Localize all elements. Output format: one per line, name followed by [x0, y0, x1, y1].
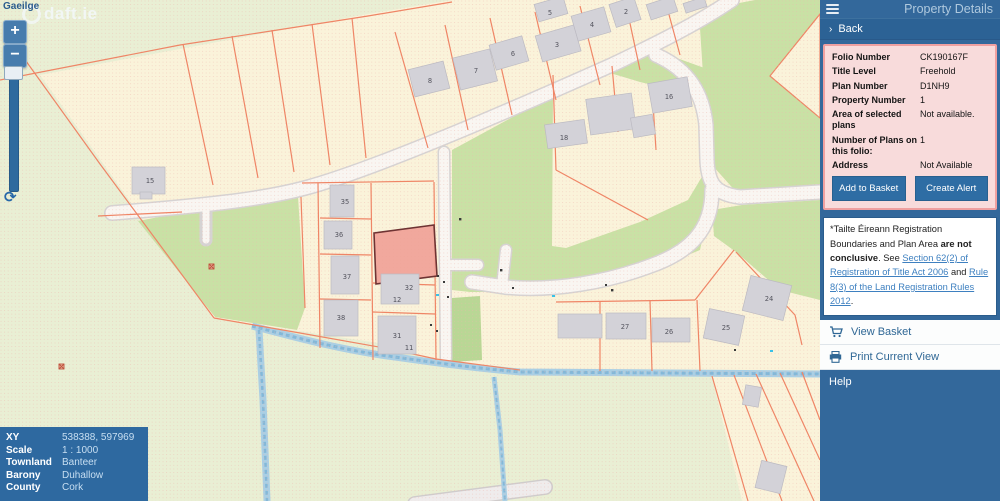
- info-value: Cork: [62, 482, 83, 495]
- zoom-slider-track[interactable]: [9, 70, 19, 192]
- zoom-in-button[interactable]: +: [3, 20, 27, 44]
- folio-details-card: Folio Number CK190167F Title Level Freeh…: [823, 44, 997, 210]
- language-link-gaeilge[interactable]: Gaeilge: [3, 1, 39, 12]
- building-label: 24: [765, 295, 773, 303]
- disclaimer-text: . See: [878, 253, 902, 263]
- info-row-townland: Townland Banteer: [6, 457, 140, 470]
- detail-label: Address: [832, 160, 920, 171]
- info-row-barony: Barony Duhallow: [6, 470, 140, 483]
- map-canvas[interactable]: 15 35 36 37 38 32 12 31 11 8 7 6 5 3 4 2…: [0, 0, 820, 501]
- info-value: 1 : 1000: [62, 445, 98, 458]
- help-link[interactable]: Help: [820, 370, 1000, 394]
- building-label: 35: [341, 198, 349, 206]
- create-alert-button[interactable]: Create Alert: [915, 176, 989, 201]
- zoom-slider-handle[interactable]: [4, 66, 23, 80]
- building-label: 12: [393, 296, 401, 304]
- detail-label: Property Number: [832, 95, 920, 106]
- detail-label: Title Level: [832, 66, 920, 77]
- detail-row-property: Property Number 1: [832, 95, 988, 106]
- printer-icon: [829, 351, 842, 363]
- detail-row-plan: Plan Number D1NH9: [832, 81, 988, 92]
- disclaimer-text: and: [948, 267, 969, 277]
- detail-label: Folio Number: [832, 52, 920, 63]
- view-basket-label: View Basket: [851, 326, 911, 338]
- back-label: Back: [838, 23, 862, 35]
- info-row-xy: XY 538388, 597969: [6, 432, 140, 445]
- info-row-scale: Scale 1 : 1000: [6, 445, 140, 458]
- detail-label: Area of selected plans: [832, 109, 920, 132]
- registration-disclaimer: *Tailte Éireann Registration Boundaries …: [823, 217, 997, 315]
- detail-value: 1: [920, 95, 925, 106]
- refresh-icon[interactable]: ⟳: [4, 188, 17, 206]
- building-label: 26: [665, 328, 673, 336]
- basket-icon: [829, 326, 843, 338]
- info-value: Banteer: [62, 457, 97, 470]
- detail-value: Not Available: [920, 160, 972, 171]
- zoom-out-button[interactable]: −: [3, 44, 27, 68]
- building-label: 6: [511, 50, 515, 58]
- info-label: XY: [6, 432, 62, 445]
- back-button[interactable]: › Back: [820, 19, 1000, 40]
- building-label: 27: [621, 323, 629, 331]
- building-label: 36: [335, 231, 343, 239]
- detail-label: Plan Number: [832, 81, 920, 92]
- building-label: 3: [555, 41, 559, 49]
- view-basket-button[interactable]: View Basket: [820, 320, 1000, 345]
- building-label: 25: [722, 324, 730, 332]
- building-label: 5: [548, 9, 552, 17]
- detail-value: D1NH9: [920, 81, 950, 92]
- info-value: 538388, 597969: [62, 432, 134, 445]
- info-label: County: [6, 482, 62, 495]
- app-window: 15 35 36 37 38 32 12 31 11 8 7 6 5 3 4 2…: [0, 0, 1000, 501]
- property-details-sidebar: Property Details › Back Folio Number CK1…: [820, 0, 1000, 501]
- building-label: 7: [474, 67, 478, 75]
- sidebar-filler: [820, 394, 1000, 501]
- detail-value: 1: [920, 135, 925, 158]
- map-info-panel: XY 538388, 597969 Scale 1 : 1000 Townlan…: [0, 427, 148, 501]
- chevron-right-icon: ›: [829, 24, 832, 35]
- add-to-basket-button[interactable]: Add to Basket: [832, 176, 906, 201]
- detail-label: Number of Plans on this folio:: [832, 135, 920, 158]
- info-row-county: County Cork: [6, 482, 140, 495]
- detail-row-folio: Folio Number CK190167F: [832, 52, 988, 63]
- disclaimer-text: *Tailte Éireann Registration Boundaries …: [830, 224, 942, 248]
- info-label: Barony: [6, 470, 62, 483]
- building-label: 16: [665, 93, 673, 101]
- building-label: 37: [343, 273, 351, 281]
- detail-value: CK190167F: [920, 52, 968, 63]
- building-label: 18: [560, 134, 568, 142]
- building-label: 8: [428, 77, 432, 85]
- building-label: 32: [405, 284, 413, 292]
- building-label: 11: [405, 344, 413, 352]
- building-label: 4: [590, 21, 594, 29]
- info-label: Scale: [6, 445, 62, 458]
- building-label: 2: [624, 8, 628, 16]
- info-value: Duhallow: [62, 470, 103, 483]
- sidebar-title: Property Details: [904, 2, 993, 16]
- detail-row-area: Area of selected plans Not available.: [832, 109, 988, 132]
- sidebar-header: Property Details: [820, 0, 1000, 19]
- info-label: Townland: [6, 457, 62, 470]
- disclaimer-text: .: [851, 296, 854, 306]
- building-label: 38: [337, 314, 345, 322]
- print-current-view-label: Print Current View: [850, 351, 939, 363]
- print-current-view-button[interactable]: Print Current View: [820, 345, 1000, 370]
- menu-icon[interactable]: [826, 4, 839, 14]
- detail-row-title-level: Title Level Freehold: [832, 66, 988, 77]
- detail-value: Not available.: [920, 109, 975, 132]
- building-label: 31: [393, 332, 401, 340]
- detail-row-plans-count: Number of Plans on this folio: 1: [832, 135, 988, 158]
- detail-row-address: Address Not Available: [832, 160, 988, 171]
- detail-value: Freehold: [920, 66, 956, 77]
- map-svg[interactable]: 15 35 36 37 38 32 12 31 11 8 7 6 5 3 4 2…: [0, 0, 820, 501]
- building-label: 15: [146, 177, 154, 185]
